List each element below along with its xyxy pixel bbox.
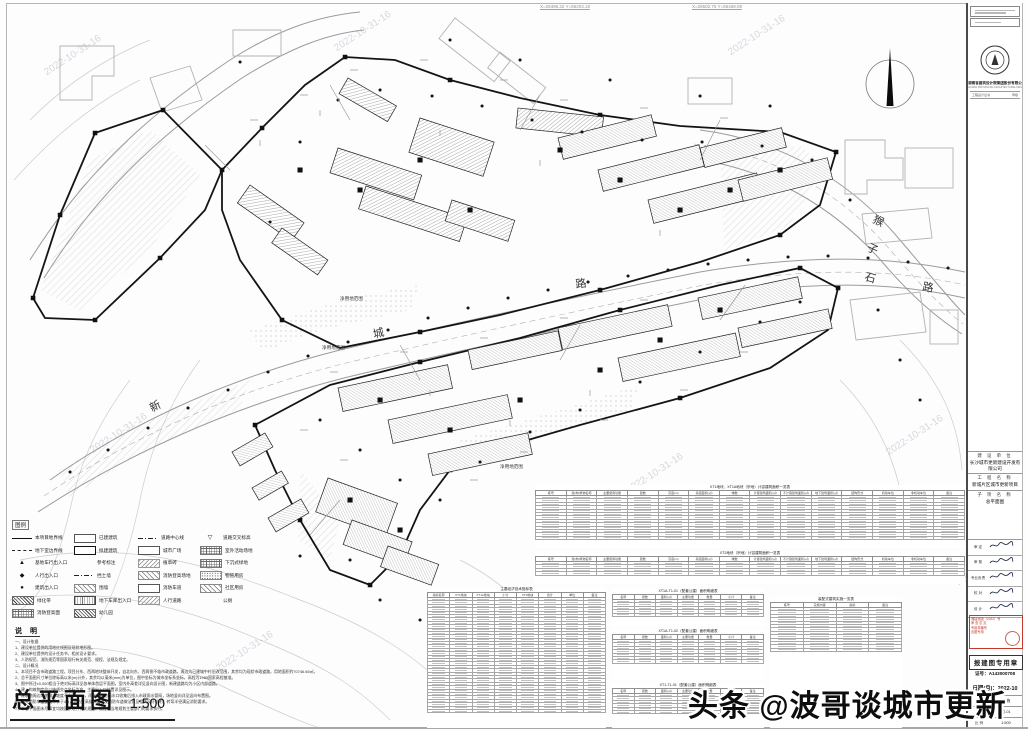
legend-swatch: ● — [12, 585, 32, 592]
legend-label: 消防登高面 — [37, 610, 60, 616]
legend-label: 参考标注 — [97, 560, 115, 566]
legend-label: 建筑出入口 — [35, 585, 58, 591]
legend-item: 挡土墙 — [74, 570, 136, 583]
legend-swatch — [12, 609, 34, 618]
legend-label: 人行出入口 — [35, 573, 58, 579]
detail-table-1: XT1A-T1-01（配套公建）面积明细表名称层数面积(㎡)主要功能数量小计备注 — [612, 589, 764, 626]
legend-item: 本项目地界线 — [12, 532, 72, 545]
legend-label: 地下室边界线 — [35, 548, 63, 554]
legend-label: 绿化带 — [37, 598, 51, 604]
legend-label: 植草砖 — [163, 560, 177, 566]
legend-swatch — [200, 546, 222, 555]
legend-label: 城市广场 — [163, 548, 181, 554]
legend-label: 社区用房 — [225, 585, 243, 591]
legend-label: 物管用房 — [225, 573, 243, 579]
titleblock-row-label: 建 设 单 位 — [968, 451, 1022, 459]
sheet-corner-box — [970, 6, 1020, 17]
titleblock-row-label: 子 项 名 称 — [968, 490, 1022, 498]
legend-item: 参考标注 — [74, 557, 136, 570]
notes-title: 说 明 — [15, 626, 40, 637]
signature-role: 审 定 — [968, 545, 988, 550]
legend-item: ◆ 人行出入口 — [12, 570, 72, 583]
area-table-xt1: XT1地块、XT1A地块（宗地）计容建筑面积一览表栋号建(构)筑物名称主要使用功… — [535, 485, 965, 548]
legend-swatch: ▽ — [200, 535, 220, 542]
legend-item: 已建建筑 — [74, 532, 136, 545]
legend-item: 绿化带 — [12, 595, 72, 608]
signature-role: 专业负责 — [968, 576, 988, 581]
legend-label: 幼儿园 — [99, 610, 113, 616]
legend-item: 下沉式绿地 — [200, 557, 254, 570]
legend-label: 公厕 — [223, 598, 232, 604]
legend-swatch — [12, 596, 34, 605]
signature-role: 设 计 — [968, 607, 988, 612]
legend-swatch — [74, 584, 96, 593]
economic-indicator-table: 主要经济技术指标表指标名称XT1地块XT1A地块小计XT2地块合计单位备注 — [427, 587, 606, 728]
legend-item: 消防车道 — [138, 582, 198, 595]
titleblock-row-value: 长沙城市更新建设开发有限公司 — [968, 459, 1022, 473]
area-table-xt2: XT2地块（宗地）计容建筑面积一览表栋号建(构)筑物名称主要使用功能层数高度(m… — [535, 551, 965, 584]
legend-item: 室外活动场地 — [200, 545, 254, 558]
titleblock-row: 工 程 名 称 新城片区城市更新项目 — [968, 473, 1022, 490]
legend-item: ● 建筑出入口 — [12, 582, 72, 595]
legend-item: 公厕 — [200, 595, 254, 608]
legend-label: 基地车行出入口 — [35, 560, 67, 566]
certificate-label: 工程设计证书 — [972, 93, 990, 97]
certificate-number: 证号：A143000708 — [968, 671, 1022, 677]
legend-item: 人行道路 — [138, 595, 198, 608]
legend-label: 消防登高场地 — [163, 573, 191, 579]
certificate-grade: 甲级 — [1012, 93, 1018, 97]
legend-item: ▲ 基地车行出入口 — [12, 557, 72, 570]
legend-label: 消防车道 — [163, 585, 181, 591]
legend-swatch — [74, 560, 94, 567]
legend-swatch — [200, 597, 220, 604]
titleblock-row: 子 项 名 称 总平面图 — [968, 490, 1022, 507]
legend-swatch — [200, 571, 222, 580]
coordinate-label: X=28502.75 Y=55468.09 — [692, 4, 742, 10]
signature-grid: 审 定 审 核 专业负责 — [968, 539, 1022, 618]
legend-item: 幼儿园 — [74, 607, 136, 620]
detail-table-2: XT1A-T1-02（配套公建）面积明细表名称层数面积(㎡)主要功能数量小计备注 — [612, 629, 764, 680]
legend-swatch — [12, 538, 32, 539]
legend-item: ▽ 道路交叉标高 — [200, 532, 254, 545]
legend-swatch — [138, 571, 160, 580]
sheet-corner-box — [970, 18, 1020, 26]
legend-swatch — [138, 559, 160, 568]
legend-label: 本项目地界线 — [35, 535, 63, 541]
signature-role: 审 核 — [968, 560, 988, 565]
legend-swatch — [74, 596, 96, 605]
legend-item: 拟建建筑 — [74, 545, 136, 558]
legend-item: 地下室边界线 — [12, 545, 72, 558]
signature-role: 校 对 — [968, 591, 988, 596]
titleblock-row-value: 总平面图 — [968, 498, 1022, 507]
legend: 图例 本项目地界线 地下室边界线 ▲ 基地车行出入口 ◆ 人行出入口 ● — [12, 514, 248, 620]
legend-title: 图例 — [12, 520, 29, 530]
legend-column: 道路中心线 城市广场 植草砖 消防登高场地 消防车道 人行道路 — [138, 532, 198, 620]
legend-label: 人行道路 — [163, 598, 181, 604]
blueprint-sheet: 新 城 路 猴 子 石 路 净用地范围 净用地范围 净用地范围 2022-10-… — [0, 0, 1028, 731]
title-block: 湖南省建筑设计院集团股份有限公司 HUNAN PROVINCIAL ARCHIT… — [968, 3, 1022, 727]
legend-swatch: ▲ — [12, 560, 32, 567]
legend-label: 地下车库出入口 — [99, 598, 131, 604]
legend-item: 社区用房 — [200, 582, 254, 595]
legend-swatch — [138, 584, 160, 593]
legend-column: 本项目地界线 地下室边界线 ▲ 基地车行出入口 ◆ 人行出入口 ● 建筑出入口 … — [12, 532, 72, 620]
legend-swatch — [138, 596, 160, 605]
plan-scale: 1:500 — [130, 695, 165, 711]
legend-label: 挡土墙 — [97, 573, 111, 579]
legend-swatch — [138, 538, 158, 539]
legend-column: ▽ 道路交叉标高 室外活动场地 下沉式绿地 物管用房 社区用房 公厕 — [200, 532, 254, 620]
legend-label: 围墙 — [99, 585, 108, 591]
legend-swatch — [138, 546, 160, 555]
legend-label: 拟建建筑 — [99, 548, 117, 554]
titleblock-row: 建 设 单 位 长沙城市更新建设开发有限公司 — [968, 451, 1022, 473]
legend-item: 消防登高场地 — [138, 570, 198, 583]
titleblock-row-label: 工 程 名 称 — [968, 473, 1022, 481]
review-stamp-red: 湘建设函〔2022〕号审 查 意 见专用章编号出图专用 — [969, 615, 1023, 649]
legend-item: 消防登高面 — [12, 607, 72, 620]
legend-label: 下沉式绿地 — [225, 560, 248, 566]
legend-column: 已建建筑 拟建建筑 参考标注 挡土墙 围墙 地下车库出入口 — [74, 532, 136, 620]
legend-label: 已建建筑 — [99, 535, 117, 541]
approval-stamp-box: 报建图专用章 — [969, 655, 1023, 670]
legend-swatch — [74, 575, 94, 576]
certificate-row: 工程设计证书 甲级 — [970, 91, 1020, 99]
legend-label: 室外活动场地 — [225, 548, 253, 554]
plan-title: 总平面图 1:500 — [10, 683, 175, 721]
company-name-en: HUNAN PROVINCIAL ARCHITECTURAL DESIGN IN… — [968, 86, 1022, 89]
legend-item: 植草砖 — [138, 557, 198, 570]
legend-swatch — [200, 584, 222, 593]
legend-item: 围墙 — [74, 582, 136, 595]
legend-item: 道路中心线 — [138, 532, 198, 545]
red-seal-icon — [1005, 631, 1020, 646]
legend-label: 道路中心线 — [161, 535, 184, 541]
legend-swatch — [12, 550, 32, 551]
legend-item: 城市广场 — [138, 545, 198, 558]
legend-item: 物管用房 — [200, 570, 254, 583]
legend-swatch: ◆ — [12, 572, 32, 579]
legend-label: 道路交叉标高 — [223, 535, 251, 541]
legend-swatch — [74, 609, 96, 618]
legend-swatch — [74, 546, 96, 555]
coordinate-label: X=28496.32 Y=55203.18 — [540, 4, 590, 10]
legend-item: 地下车库出入口 — [74, 595, 136, 608]
legend-swatch — [200, 559, 222, 568]
plan-title-text: 总平面图 — [12, 683, 116, 715]
watermark-text: 头条 @波哥谈城市更新 — [688, 681, 1007, 725]
legend-swatch — [74, 534, 96, 543]
titleblock-row-value: 新城片区城市更新项目 — [968, 481, 1022, 490]
design-institute-logo — [968, 43, 1022, 77]
